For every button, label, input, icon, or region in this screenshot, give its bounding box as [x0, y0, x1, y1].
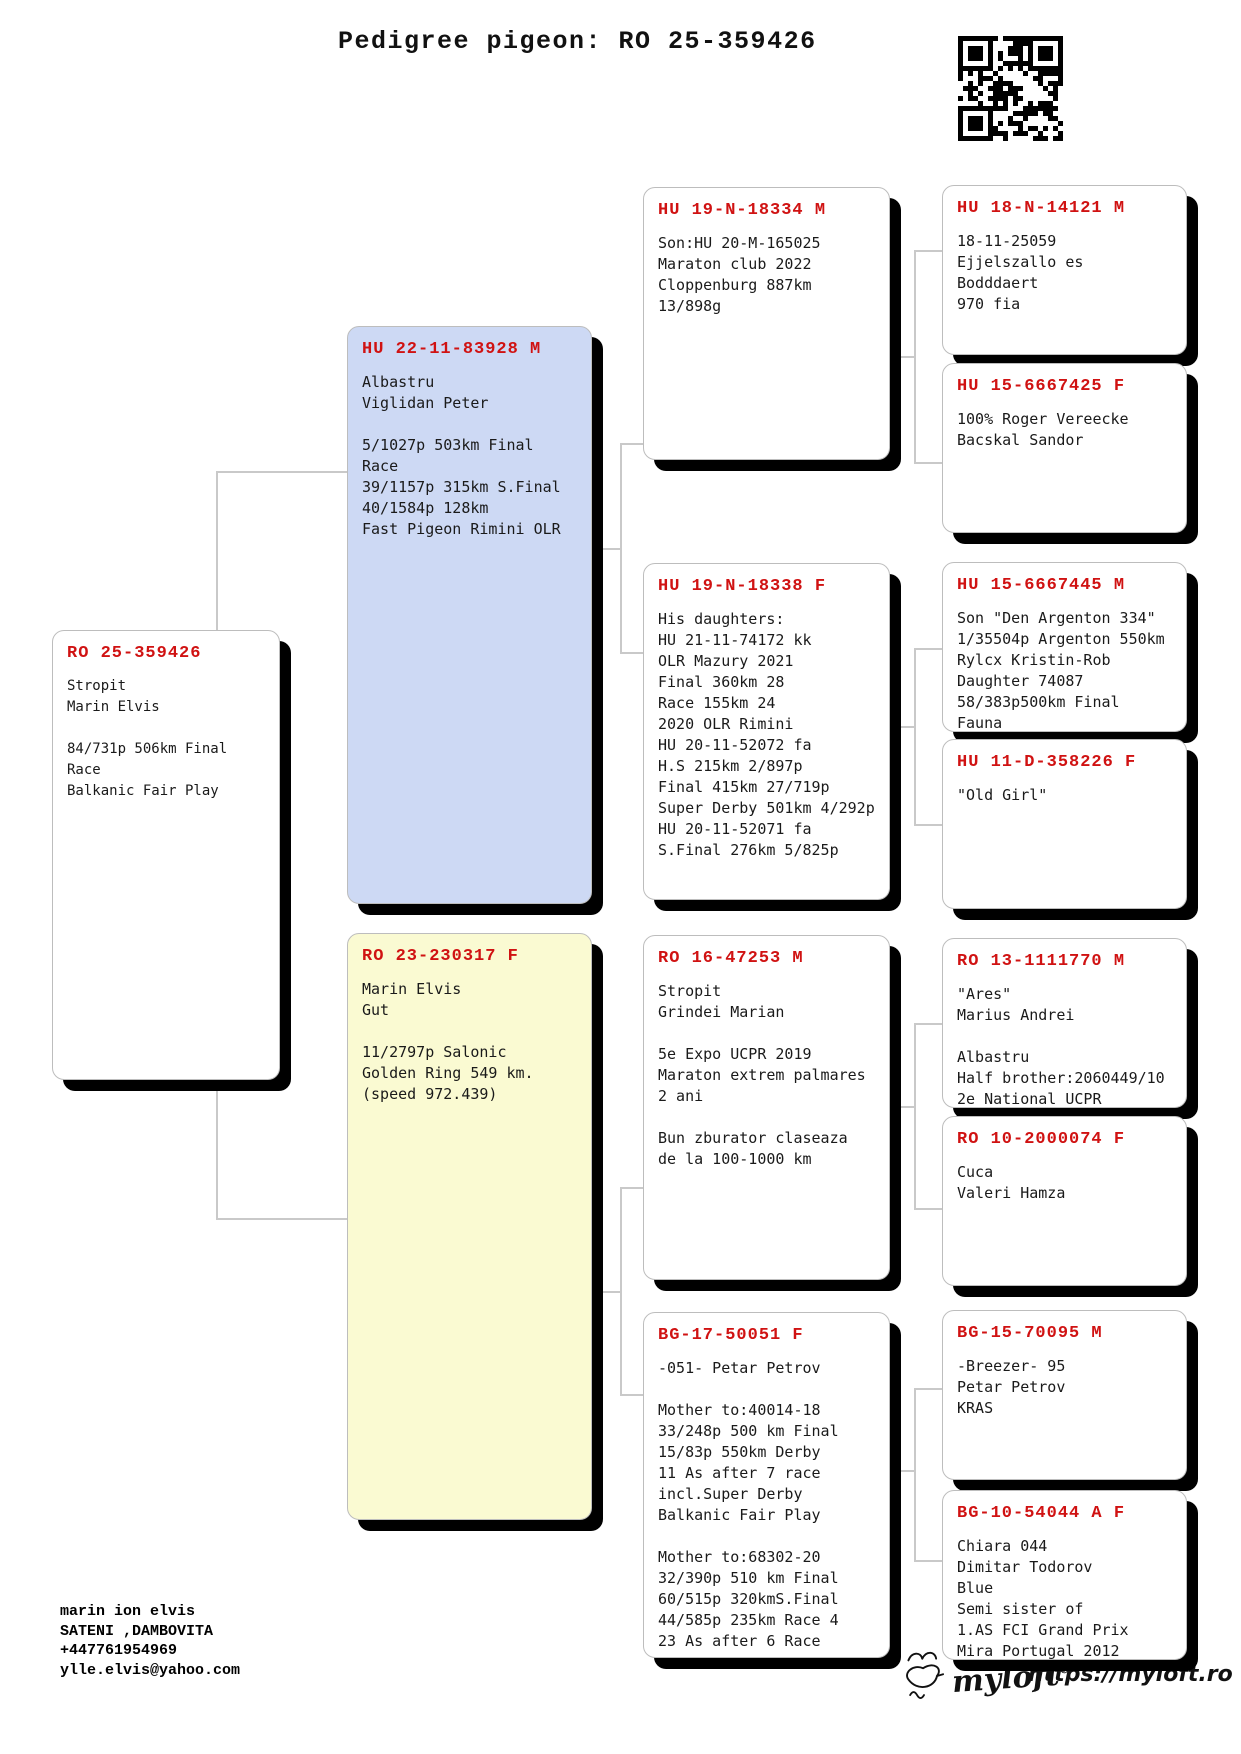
connector-line [620, 1187, 643, 1189]
subject-details: Stropit Marin Elvis 84/731p 506km Final … [67, 676, 266, 802]
connector-line [914, 250, 942, 252]
connector-line [890, 356, 916, 358]
connector-line [914, 1388, 942, 1390]
connector-line [914, 648, 942, 650]
pedigree-page: Pedigree pigeon: RO 25-359426 RO 25-3594… [0, 0, 1241, 1754]
dam-details: Marin Elvis Gut 11/2797p Salonic Golden … [362, 979, 578, 1105]
great-grandparent-box-2: HU 15-6667425 F 100% Roger Vereecke Bacs… [942, 363, 1187, 533]
ring-number: HU 15-6667425 F [957, 377, 1173, 396]
great-grandparent-box-4: HU 11-D-358226 F "Old Girl" [942, 739, 1187, 909]
ring-number: HU 11-D-358226 F [957, 753, 1173, 772]
grandparent-box-2: HU 19-N-18338 F His daughters: HU 21-11-… [643, 563, 890, 900]
pigeon-details: Son "Den Argenton 334" 1/35504p Argenton… [957, 608, 1173, 732]
pigeon-details: His daughters: HU 21-11-74172 kk OLR Maz… [658, 609, 876, 861]
pigeon-details: Son:HU 20-M-165025 Maraton club 2022 Clo… [658, 233, 876, 317]
ring-number: BG-15-70095 M [957, 1324, 1173, 1343]
connector-line [620, 1394, 643, 1396]
ring-number: HU 19-N-18338 F [658, 577, 876, 596]
ring-number: RO 13-1111770 M [957, 952, 1173, 971]
subject-box: RO 25-359426 Stropit Marin Elvis 84/731p… [52, 630, 280, 1080]
great-grandparent-box-3: HU 15-6667445 M Son "Den Argenton 334" 1… [942, 562, 1187, 732]
owner-contact-block: marin ion elvis SATENI ,DAMBOVITA +44776… [60, 1602, 240, 1680]
ring-number: RO 10-2000074 F [957, 1130, 1173, 1149]
great-grandparent-box-1: HU 18-N-14121 M 18-11-25059 Ejjelszallo … [942, 185, 1187, 355]
connector-line [620, 652, 643, 654]
connector-line [890, 1106, 916, 1108]
connector-line [914, 1023, 942, 1025]
grandparent-box-3: RO 16-47253 M Stropit Grindei Marian 5e … [643, 935, 890, 1280]
ring-number: BG-10-54044 A F [957, 1504, 1173, 1523]
great-grandparent-box-7: BG-15-70095 M -Breezer- 95 Petar Petrov … [942, 1310, 1187, 1480]
bird-logo-icon [898, 1648, 950, 1708]
grandparent-box-4: BG-17-50051 F -051- Petar Petrov Mother … [643, 1312, 890, 1658]
connector-line [914, 1388, 916, 1562]
great-grandparent-box-5: RO 13-1111770 M "Ares" Marius Andrei Alb… [942, 938, 1187, 1108]
pigeon-details: -Breezer- 95 Petar Petrov KRAS [957, 1356, 1173, 1419]
sire-ring-number: HU 22-11-83928 M [362, 340, 578, 359]
connector-line [592, 548, 622, 550]
page-title: Pedigree pigeon: RO 25-359426 [338, 27, 817, 56]
pigeon-details: 100% Roger Vereecke Bacskal Sandor [957, 409, 1173, 451]
ring-number: RO 16-47253 M [658, 949, 876, 968]
grandparent-box-1: HU 19-N-18334 M Son:HU 20-M-165025 Marat… [643, 187, 890, 460]
connector-line [914, 824, 942, 826]
connector-line [592, 1291, 622, 1293]
connector-line [890, 1470, 916, 1472]
ring-number: BG-17-50051 F [658, 1326, 876, 1345]
connector-line [914, 462, 942, 464]
pigeon-details: "Ares" Marius Andrei Albastru Half broth… [957, 984, 1173, 1108]
pigeon-details: Stropit Grindei Marian 5e Expo UCPR 2019… [658, 981, 876, 1170]
connector-line [620, 443, 643, 445]
great-grandparent-box-6: RO 10-2000074 F Cuca Valeri Hamza [942, 1116, 1187, 1286]
connector-line [216, 471, 347, 473]
ring-number: HU 18-N-14121 M [957, 199, 1173, 218]
pigeon-details: Cuca Valeri Hamza [957, 1162, 1173, 1204]
connector-line [914, 1208, 942, 1210]
connector-line [914, 1023, 916, 1210]
ring-number: HU 15-6667445 M [957, 576, 1173, 595]
dam-box: RO 23-230317 F Marin Elvis Gut 11/2797p … [347, 933, 592, 1520]
pigeon-details: 18-11-25059 Ejjelszallo es Bodddaert 970… [957, 231, 1173, 315]
ring-number: HU 19-N-18334 M [658, 201, 876, 220]
connector-line [216, 1218, 347, 1220]
myloft-url-link[interactable]: https://myloft.ro [1028, 1662, 1233, 1687]
sire-details: Albastru Viglidan Peter 5/1027p 503km Fi… [362, 372, 578, 540]
subject-ring-number: RO 25-359426 [67, 644, 266, 663]
connector-line [914, 1560, 942, 1562]
dam-ring-number: RO 23-230317 F [362, 947, 578, 966]
sire-box: HU 22-11-83928 M Albastru Viglidan Peter… [347, 326, 592, 904]
qr-code-icon [958, 36, 1063, 141]
pigeon-details: Chiara 044 Dimitar Todorov Blue Semi sis… [957, 1536, 1173, 1660]
pigeon-details: -051- Petar Petrov Mother to:40014-18 33… [658, 1358, 876, 1652]
connector-line [914, 648, 916, 826]
great-grandparent-box-8: BG-10-54044 A F Chiara 044 Dimitar Todor… [942, 1490, 1187, 1660]
pigeon-details: "Old Girl" [957, 785, 1173, 806]
connector-line [890, 726, 916, 728]
